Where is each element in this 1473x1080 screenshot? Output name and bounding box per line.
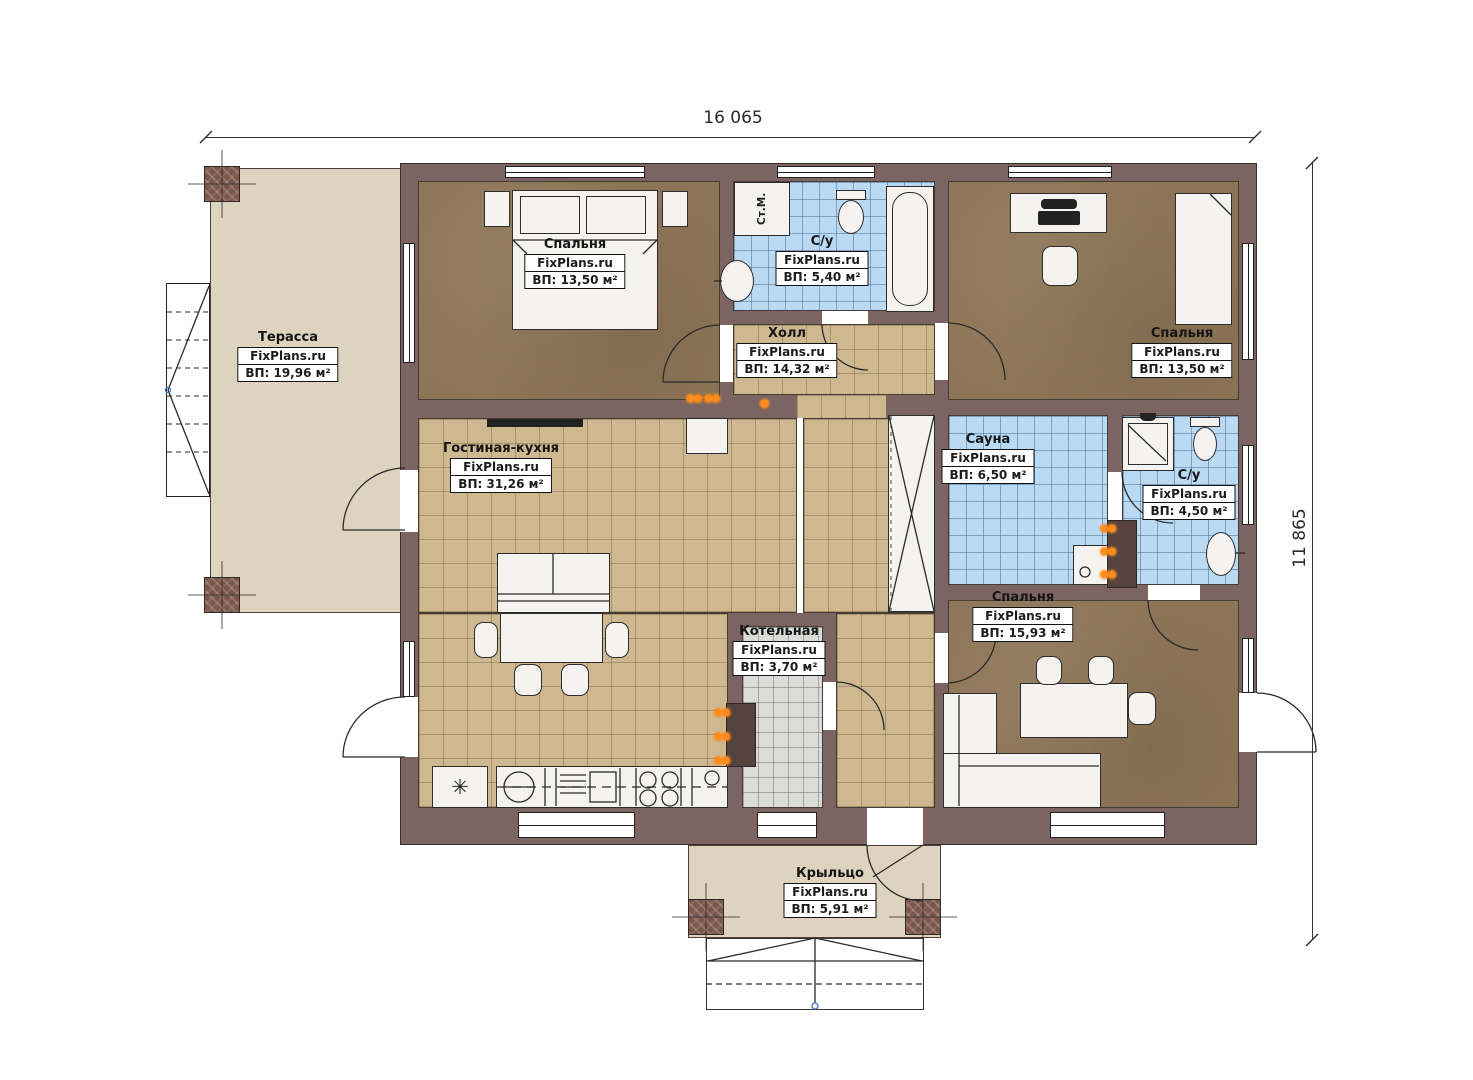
door-gap-bedroom-top-right — [935, 323, 948, 380]
room-brand: FixPlans.ru — [1143, 486, 1234, 503]
shower-head-icon — [1140, 413, 1156, 421]
room-area: ВП: 5,91 м² — [784, 901, 875, 917]
room-area: ВП: 6,50 м² — [942, 467, 1033, 483]
hall-corridor-lower-floor — [836, 613, 935, 808]
room-label-living-kitchen: Гостиная-кухня FixPlans.ru ВП: 31,26 м² — [443, 441, 559, 493]
flame-icon — [712, 730, 732, 743]
sink-icon — [720, 260, 754, 302]
room-label-bathroom-top: С/у FixPlans.ru ВП: 5,40 м² — [775, 234, 868, 286]
tv — [487, 419, 583, 427]
shower-basin — [1128, 423, 1168, 465]
bathtub-basin — [892, 192, 928, 306]
room-brand: FixPlans.ru — [776, 252, 867, 269]
lamp-dot-icon — [758, 397, 771, 410]
room-area: ВП: 31,26 м² — [451, 476, 550, 492]
door-gap-bedroom-top-left — [720, 325, 733, 382]
window-bathroom-right-wall — [1242, 445, 1254, 525]
window-bedroom-top-right — [1008, 166, 1112, 178]
snowflake-icon: ✳ — [451, 775, 469, 799]
porch-steps — [706, 938, 924, 1010]
room-area: ВП: 13,50 м² — [525, 272, 624, 288]
room-area: ВП: 15,93 м² — [973, 625, 1072, 641]
hall-doorway-floor — [797, 395, 886, 419]
sink-icon — [1206, 532, 1236, 576]
chair — [1036, 656, 1062, 685]
window-bedroom3-right-wall — [1242, 638, 1254, 693]
fridge: ✳ — [432, 766, 488, 808]
flame-icon — [702, 392, 722, 405]
room-brand: FixPlans.ru — [784, 884, 875, 901]
window-living-left-wall — [403, 641, 415, 697]
chair — [605, 622, 629, 658]
room-name: Котельная — [739, 624, 819, 639]
washing-machine-label: Ст.М. — [735, 183, 789, 235]
room-brand: FixPlans.ru — [451, 459, 550, 476]
floor-plan: 16 065 11 865 — [0, 0, 1473, 1080]
bed-single — [1175, 193, 1232, 325]
porch-column-left — [688, 899, 724, 935]
kitchen-counter — [496, 766, 728, 808]
window-boiler-bottom — [757, 812, 817, 838]
room-label-hall: Холл FixPlans.ru ВП: 14,32 м² — [736, 326, 837, 378]
chair — [1128, 692, 1156, 725]
room-brand: FixPlans.ru — [1132, 344, 1231, 361]
dimension-height-label: 11 865 — [1290, 490, 1310, 586]
pillow-left — [520, 196, 580, 234]
terrace-column-bottom — [204, 577, 240, 613]
dimension-width-label: 16 065 — [688, 108, 778, 128]
room-area: ВП: 3,70 м² — [733, 659, 824, 675]
nightstand-left — [484, 191, 510, 227]
nightstand-right — [662, 191, 688, 227]
dining-table — [500, 613, 603, 663]
room-label-bedroom-top-left: Спальня FixPlans.ru ВП: 13,50 м² — [524, 237, 625, 289]
room-name: Сауна — [966, 432, 1011, 447]
room-label-porch: Крыльцо FixPlans.ru ВП: 5,91 м² — [783, 866, 876, 918]
door-gap-porch — [867, 808, 923, 845]
room-area: ВП: 19,96 м² — [238, 365, 337, 381]
toilet-tank-right — [1190, 417, 1220, 427]
sofa — [497, 553, 610, 613]
room-name: Терасса — [258, 330, 318, 345]
room-brand: FixPlans.ru — [737, 344, 836, 361]
room-brand: FixPlans.ru — [238, 348, 337, 365]
room-label-terrace: Терасса FixPlans.ru ВП: 19,96 м² — [237, 330, 338, 382]
window-bedroom-right-wall — [1242, 243, 1254, 360]
door-gap-left-exterior — [400, 697, 418, 757]
flame-icon — [1098, 522, 1118, 535]
pillow-right — [586, 196, 646, 234]
washing-machine: Ст.М. — [734, 182, 790, 236]
room-name: Крыльцо — [796, 866, 864, 881]
room-area: ВП: 4,50 м² — [1143, 503, 1234, 519]
room-name: С/у — [1178, 468, 1201, 483]
window-bedroom-left-wall — [403, 243, 415, 363]
flame-icon — [684, 392, 704, 405]
room-name: С/у — [811, 234, 834, 249]
office-chair — [1042, 246, 1078, 286]
chair — [474, 622, 498, 658]
room-label-bedroom-top-right: Спальня FixPlans.ru ВП: 13,50 м² — [1131, 326, 1232, 378]
door-gap-bathroom-right — [1148, 585, 1200, 600]
room-label-sauna: Сауна FixPlans.ru ВП: 6,50 м² — [941, 432, 1034, 484]
laptop-base — [1038, 211, 1080, 225]
door-gap-terrace — [400, 470, 418, 532]
fireplace — [686, 418, 728, 454]
flame-icon — [1098, 568, 1118, 581]
room-name: Спальня — [992, 590, 1054, 605]
room-brand: FixPlans.ru — [942, 450, 1033, 467]
chair — [514, 664, 542, 696]
toilet-icon — [838, 200, 864, 234]
chair — [561, 664, 589, 696]
flame-icon — [1098, 545, 1118, 558]
corner-sofa-horizontal — [943, 753, 1101, 808]
table — [1020, 683, 1128, 738]
floor-transition-strip — [797, 418, 803, 613]
terrace-column-top — [204, 166, 240, 202]
toilet-tank-top — [836, 190, 866, 200]
laptop-icon — [1041, 199, 1077, 209]
room-area: ВП: 14,32 м² — [737, 361, 836, 377]
door-gap-sauna — [1108, 472, 1122, 523]
door-gap-bedroom-bottom-right — [935, 633, 948, 683]
flame-icon — [712, 754, 732, 767]
flame-icon — [712, 706, 732, 719]
room-area: ВП: 5,40 м² — [776, 269, 867, 285]
room-brand: FixPlans.ru — [525, 255, 624, 272]
terrace-floor — [210, 168, 407, 613]
chair — [1088, 656, 1114, 685]
door-gap-boiler — [823, 682, 836, 730]
toilet-icon — [1193, 427, 1217, 461]
wardrobe — [888, 415, 935, 612]
window-living-bottom — [518, 812, 635, 838]
terrace-stairs — [166, 283, 210, 497]
room-area: ВП: 13,50 м² — [1132, 361, 1231, 377]
room-label-bathroom-right: С/у FixPlans.ru ВП: 4,50 м² — [1142, 468, 1235, 520]
room-label-bedroom-bottom-right: Спальня FixPlans.ru ВП: 15,93 м² — [972, 590, 1073, 642]
room-name: Холл — [768, 326, 806, 341]
room-name: Спальня — [1151, 326, 1213, 341]
room-label-boiler: Котельная FixPlans.ru ВП: 3,70 м² — [732, 624, 825, 676]
dimension-height-line — [1312, 163, 1313, 940]
porch-column-right — [905, 899, 941, 935]
window-bathroom-top — [777, 166, 875, 178]
room-brand: FixPlans.ru — [973, 608, 1072, 625]
door-gap-right-exterior — [1239, 693, 1257, 752]
dimension-width-line — [205, 137, 1255, 138]
window-bedroom-top-left — [505, 166, 645, 178]
room-name: Спальня — [544, 237, 606, 252]
room-brand: FixPlans.ru — [733, 642, 824, 659]
door-gap-bathroom-top — [822, 311, 868, 324]
window-bedroom3-bottom — [1050, 812, 1165, 838]
room-name: Гостиная-кухня — [443, 441, 559, 456]
